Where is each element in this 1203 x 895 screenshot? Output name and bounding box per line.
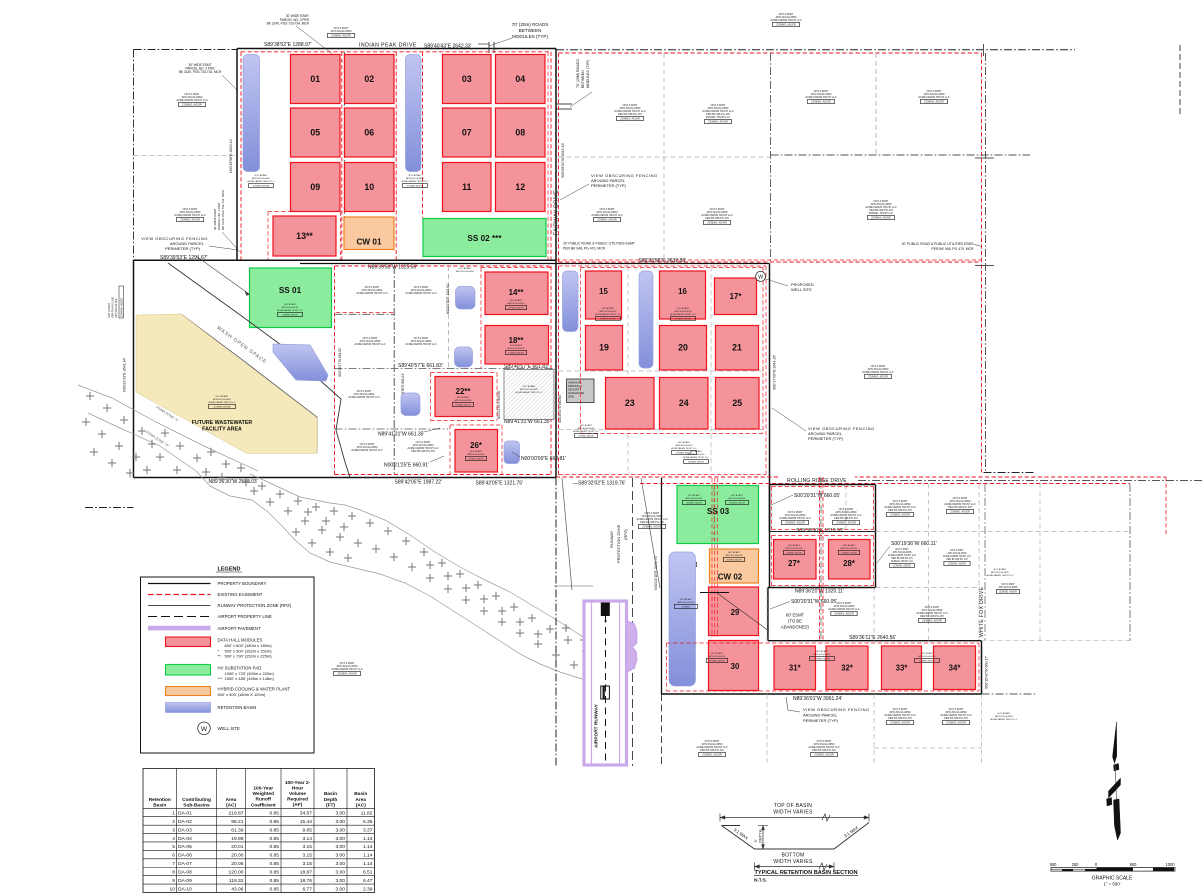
svg-text:98.21: 98.21	[231, 819, 244, 825]
svg-text:APN 301-04-005D: APN 301-04-005D	[282, 306, 299, 309]
svg-text:3.00: 3.00	[335, 844, 345, 850]
svg-text:NOT A PART: NOT A PART	[728, 551, 741, 554]
svg-text:4: 4	[172, 836, 175, 842]
svg-text:DA-10: DA-10	[178, 886, 192, 892]
svg-text:ZONING: AG/GR: ZONING: AG/GR	[786, 551, 802, 554]
svg-text:20.01: 20.01	[231, 844, 244, 850]
svg-text:TOP OF BASIN: TOP OF BASIN	[774, 803, 813, 809]
svg-text:3.00: 3.00	[335, 878, 345, 884]
svg-text:PROPERTY BOUNDARY: PROPERTY BOUNDARY	[218, 581, 267, 586]
svg-text:3.14: 3.14	[302, 836, 312, 842]
svg-text:BK 3140, PGS 733-734, MCR: BK 3140, PGS 733-734, MCR	[221, 189, 225, 230]
svg-text:NOT A PART: NOT A PART	[895, 548, 909, 551]
svg-text:ACME FARMS TRUST LLC: ACME FARMS TRUST LLC	[277, 309, 303, 312]
svg-text:ZONING: ZONING	[682, 606, 690, 608]
svg-text:18**: 18**	[509, 336, 525, 345]
svg-text:ZONING: AG/GR: ZONING: AG/GR	[948, 562, 966, 565]
svg-text:ZONING: AG/GR: ZONING: AG/GR	[726, 558, 742, 561]
svg-text:ROLLING RIDGE DRIVE: ROLLING RIDGE DRIVE	[787, 478, 847, 484]
svg-text:500: 500	[1050, 862, 1058, 867]
svg-text:0.85: 0.85	[269, 836, 279, 842]
svg-text:S00’05'02”W 2643.15': S00’05'02”W 2643.15'	[561, 143, 565, 178]
svg-text:ZONING: AG/SR: ZONING: AG/SR	[337, 671, 356, 675]
svg-text:WIDTH VARIES: WIDTH VARIES	[773, 859, 813, 865]
svg-text:ZONING: AG/GR: ZONING: AG/GR	[407, 184, 424, 187]
svg-text:ACME FARMS TRUST LLC: ACME FARMS TRUST LLC	[405, 342, 436, 346]
svg-text:ZONING: AG/GR: ZONING: AG/GR	[950, 509, 970, 513]
svg-text:PER BK 948 PG 470: PER BK 948 PG 470	[944, 716, 968, 720]
svg-text:BETWEEN: BETWEEN	[581, 70, 585, 88]
svg-text:3.15: 3.15	[302, 861, 312, 867]
svg-text:ZONING: AG/GR: ZONING: AG/GR	[686, 501, 702, 504]
svg-text:PER BK 948 PG 470: PER BK 948 PG 470	[618, 112, 642, 116]
svg-text:APN 301-04-005D: APN 301-04-005D	[213, 398, 231, 401]
svg-text:01: 01	[310, 74, 320, 84]
svg-text:(AC): (AC)	[226, 803, 237, 809]
svg-text:APN 301-04-005D: APN 301-04-005D	[709, 655, 726, 658]
svg-text:ZONING: AG/GR: ZONING: AG/GR	[871, 215, 891, 219]
svg-text:ACME FARMS TRUST LLC: ACME FARMS TRUST LLC	[356, 291, 387, 295]
svg-text:RUNWAY: RUNWAY	[609, 530, 614, 548]
svg-text:24: 24	[679, 398, 689, 408]
svg-text:20: 20	[678, 343, 688, 353]
svg-text:0.85: 0.85	[269, 819, 279, 825]
svg-text:HYBRID COOLING & WATER PLANT: HYBRID COOLING & WATER PLANT	[218, 687, 291, 692]
svg-text:ACME FARMS TRUST LLC: ACME FARMS TRUST LLC	[683, 456, 709, 459]
svg-text:ACME FARMS TRUST LLC: ACME FARMS TRUST LLC	[862, 370, 893, 374]
svg-text:ZONING: AG/GR: ZONING: AG/GR	[578, 434, 594, 437]
svg-text:Basin: Basin	[324, 791, 337, 797]
svg-text:ACME FARMS TRUST LLC: ACME FARMS TRUST LLC	[174, 213, 205, 217]
svg-text:02: 02	[364, 74, 374, 84]
svg-text:2.39: 2.39	[363, 886, 373, 892]
svg-text:N00’21'25”E 660.91': N00’21'25”E 660.91'	[384, 463, 429, 469]
svg-text:Volume: Volume	[289, 791, 306, 797]
svg-text:ZONING: AG/GR: ZONING: AG/GR	[814, 752, 834, 756]
svg-text:NOT A PART: NOT A PART	[816, 650, 829, 653]
svg-text:**: **	[218, 654, 222, 659]
svg-text:W: W	[201, 726, 208, 733]
svg-text:MODULES (TYP): MODULES (TYP)	[586, 60, 590, 88]
svg-text:11.82: 11.82	[361, 811, 373, 817]
svg-text:22**: 22**	[456, 387, 472, 396]
svg-text:ACME FARMS TRUST LLC: ACME FARMS TRUST LLC	[770, 18, 801, 22]
svg-text:BOTTOM: BOTTOM	[781, 853, 804, 859]
svg-text:NOT A PART: NOT A PART	[510, 299, 523, 302]
svg-text:500' x 730' (152m x 225m): 500' x 730' (152m x 225m)	[225, 654, 273, 659]
svg-text:APN 301-04-005D: APN 301-04-005D	[995, 715, 1013, 718]
svg-text:09: 09	[310, 182, 320, 192]
svg-text:ACME FARMS TRUST LLC: ACME FARMS TRUST LLC	[779, 516, 810, 520]
svg-text:61.39: 61.39	[231, 827, 244, 833]
svg-text:DEPTH: DEPTH	[758, 829, 763, 843]
svg-text:S00’19'27”W 661.01': S00’19'27”W 661.01'	[338, 347, 342, 377]
svg-text:ZONING: AG/GR: ZONING: AG/GR	[620, 116, 640, 120]
svg-text:NOT A PART: NOT A PART	[1001, 583, 1015, 586]
svg-text:—S89’32'02”E 1319.76': —S89’32'02”E 1319.76'	[573, 480, 626, 486]
svg-text:27*: 27*	[788, 559, 801, 568]
svg-text:N89’39'50”W 1325.56': N89’39'50”W 1325.56'	[368, 264, 417, 270]
svg-text:Area: Area	[355, 797, 366, 803]
svg-text:NOT A PART: NOT A PART	[843, 544, 856, 547]
svg-text:ZONING: AG/GR: ZONING: AG/GR	[893, 564, 911, 567]
svg-text:APN 301-04-005D: APN 301-04-005D	[841, 547, 858, 550]
svg-text:APN 301-04-005D: APN 301-04-005D	[578, 427, 595, 430]
svg-text:APN 301-04-005D: APN 301-04-005D	[508, 347, 525, 350]
svg-text:SS 03: SS 03	[707, 507, 730, 516]
svg-text:PER BK 948 PG 470: PER BK 948 PG 470	[948, 505, 972, 509]
svg-text:07: 07	[462, 127, 472, 137]
svg-text:2: 2	[172, 819, 175, 825]
svg-text:AROUND PARCEL: AROUND PARCEL	[803, 713, 838, 718]
svg-text:7: 7	[172, 861, 175, 867]
svg-text:3.00: 3.00	[335, 811, 345, 817]
svg-text:05: 05	[310, 127, 320, 137]
svg-text:APN 301-04-005D: APN 301-04-005D	[331, 29, 352, 33]
svg-text:6: 6	[172, 853, 175, 859]
svg-text:1.14: 1.14	[363, 844, 373, 850]
svg-text:ZONING: AG/GR: ZONING: AG/GR	[890, 720, 910, 724]
svg-text:ACME FARMS TRUST LLC: ACME FARMS TRUST LLC	[888, 554, 917, 557]
svg-text:ACME FARMS TRUST LLC: ACME FARMS TRUST LLC	[516, 391, 543, 394]
svg-text:ZONING: AG/GR: ZONING: AG/GR	[508, 306, 524, 309]
svg-text:NOT A PART: NOT A PART	[731, 494, 744, 497]
svg-text:FACILITY AREA: FACILITY AREA	[202, 427, 242, 433]
svg-text:100-Year: 100-Year	[253, 786, 273, 792]
svg-text:60' ESMT: 60' ESMT	[786, 613, 805, 618]
svg-text:ACME FARMS TRUST LLC: ACME FARMS TRUST LLC	[248, 180, 275, 183]
svg-text:DA-09: DA-09	[178, 878, 192, 884]
svg-text:S89’40'57”E 661.83': S89’40'57”E 661.83'	[504, 364, 549, 370]
svg-text:NOT A PART: NOT A PART	[950, 549, 964, 552]
svg-text:ZONING: AG/GR: ZONING: AG/GR	[597, 217, 617, 221]
svg-text:3: 3	[172, 827, 175, 833]
svg-text:APN 301-04-005D: APN 301-04-005D	[726, 554, 743, 557]
svg-text:PER BK 948 PG 470: PER BK 948 PG 470	[920, 614, 944, 618]
svg-text:APN 301-04-005D: APN 301-04-005D	[688, 453, 705, 456]
svg-text:S00’17'40”W 2644.25': S00’17'40”W 2644.25'	[773, 355, 777, 390]
svg-text:VIEW OBSCURING FENCING: VIEW OBSCURING FENCING	[803, 707, 870, 712]
svg-text:119.32: 119.32	[229, 878, 244, 884]
svg-text:19.98: 19.98	[231, 836, 244, 842]
svg-text:ZONING: AG/GR: ZONING: AG/GR	[946, 720, 966, 724]
svg-text:S89’42'05”E 1321.75': S89’42'05”E 1321.75'	[476, 480, 524, 486]
svg-text:20.00: 20.00	[231, 853, 244, 859]
svg-text:APN 301-04-005D: APN 301-04-005D	[678, 601, 695, 604]
svg-text:1: 1	[172, 811, 175, 817]
svg-text:600' x 600' (180m x 180m): 600' x 600' (180m x 180m)	[225, 643, 273, 648]
svg-text:500' x 500' (152m x 152m): 500' x 500' (152m x 152m)	[225, 648, 273, 653]
svg-text:PROTECTION ZONE: PROTECTION ZONE	[616, 524, 621, 563]
svg-text:03: 03	[462, 74, 472, 84]
svg-text:PER BK 948 PG 470: PER BK 948 PG 470	[888, 508, 912, 512]
svg-text:ACME FARMS TRUST LLC: ACME FARMS TRUST LLC	[209, 401, 236, 404]
svg-text:S89’33'58”E 2632.83': S89’33'58”E 2632.83'	[639, 258, 687, 264]
svg-text:WHITE FOX DRIVE: WHITE FOX DRIVE	[979, 586, 985, 637]
svg-text:ZONING: AG/GR: ZONING: AG/GR	[600, 317, 616, 320]
svg-text:N00’19'56”E 2643.14': N00’19'56”E 2643.14'	[229, 138, 233, 173]
svg-text:APN 301-04-005D: APN 301-04-005D	[468, 453, 485, 456]
svg-text:CW 01: CW 01	[356, 238, 381, 247]
svg-text:20.05: 20.05	[231, 861, 244, 867]
svg-text:Retention: Retention	[149, 797, 171, 803]
svg-text:APN 301-04-005D: APN 301-04-005D	[686, 497, 703, 500]
svg-text:20' PUBLIC ROAD & PUBLIC UTILI: 20' PUBLIC ROAD & PUBLIC UTILITIES ESMT	[563, 242, 635, 246]
svg-text:5: 5	[172, 844, 175, 850]
svg-text:Sub-Basins: Sub-Basins	[183, 803, 210, 809]
svg-text:ACME FARMS TRUST LLC: ACME FARMS TRUST LLC	[348, 395, 379, 399]
svg-text:NOT A PART: NOT A PART	[216, 395, 229, 398]
svg-text:DA-07: DA-07	[178, 861, 192, 867]
svg-text:APN 301-04-005D: APN 301-04-005D	[814, 653, 831, 656]
svg-text:WELL SITE: WELL SITE	[791, 287, 812, 292]
svg-text:NOT A PART: NOT A PART	[688, 494, 701, 497]
svg-text:PER BK 948 PG 470: PER BK 948 PG 470	[640, 520, 664, 524]
svg-text:SS 01: SS 01	[279, 286, 302, 295]
svg-text:3.15: 3.15	[302, 853, 312, 859]
svg-text:ACME FARMS TRUST LLC: ACME FARMS TRUST LLC	[943, 555, 972, 558]
svg-text:ACME FARMS TRUST LLC: ACME FARMS TRUST LLC	[591, 213, 622, 217]
svg-text:N89’41'31”W 661.35': N89’41'31”W 661.35'	[378, 432, 424, 438]
svg-text:RUNWAY PROTECTION ZONE (RPZ): RUNWAY PROTECTION ZONE (RPZ)	[218, 603, 292, 608]
svg-text:N89’36'30”W 2588.03': N89’36'30”W 2588.03'	[209, 479, 258, 485]
svg-text:NOT A PART: NOT A PART	[678, 441, 691, 444]
svg-text:33*: 33*	[896, 664, 909, 673]
svg-text:APN 301-04-005D: APN 301-04-005D	[252, 177, 270, 180]
svg-text:15.44: 15.44	[300, 819, 313, 825]
svg-text:14**: 14**	[509, 288, 525, 297]
svg-text:BK 3140, PGS 733-734, MCR: BK 3140, PGS 733-734, MCR	[179, 70, 222, 74]
svg-text:ZONING: AG/GR: ZONING: AG/GR	[282, 313, 298, 316]
svg-text:ZONING: AG/GR: ZONING: AG/GR	[182, 102, 202, 106]
svg-text:3.00: 3.00	[335, 836, 345, 842]
svg-text:16: 16	[678, 287, 687, 296]
svg-text:70' (20M) ROADS: 70' (20M) ROADS	[576, 59, 580, 88]
svg-text:17*: 17*	[730, 292, 743, 301]
svg-text:Coefficient: Coefficient	[251, 802, 276, 808]
svg-text:APN 301-04-005D: APN 301-04-005D	[676, 444, 693, 447]
svg-text:ACME FARMS TRUST LLC: ACME FARMS TRUST LLC	[405, 291, 436, 295]
svg-text:PER BK 948, PG 470, MCR: PER BK 948, PG 470, MCR	[931, 247, 974, 251]
svg-text:PER BK 948 PG 470: PER BK 948 PG 470	[891, 558, 913, 560]
svg-text:APN 301-04-005D: APN 301-04-005D	[948, 552, 967, 555]
svg-text:0.85: 0.85	[269, 869, 279, 875]
svg-text:ZONING: AG/GR: ZONING: AG/GR	[331, 33, 351, 37]
svg-text:0.85: 0.85	[269, 827, 279, 833]
svg-text:100-Year 2-: 100-Year 2-	[285, 780, 311, 786]
svg-text:NOT A PART: NOT A PART	[523, 385, 536, 388]
svg-text:18.76: 18.76	[300, 878, 313, 884]
svg-text:NOT A PART: NOT A PART	[409, 174, 422, 177]
svg-text:N00’23'54”E 660.80': N00’23'54”E 660.80'	[497, 390, 501, 419]
svg-text:ZONING: AG/GR: ZONING: AG/GR	[708, 119, 728, 123]
svg-text:19: 19	[599, 343, 609, 353]
svg-text:PERIMETER (TYP): PERIMETER (TYP)	[591, 183, 627, 188]
svg-text:N00’21'35”E 1321.81': N00’21'35”E 1321.81'	[446, 283, 450, 314]
svg-text:PERIMETER (TYP): PERIMETER (TYP)	[803, 718, 839, 723]
svg-text:PER BK 948 PG 470: PER BK 948 PG 470	[888, 716, 912, 720]
svg-text:10: 10	[170, 886, 176, 892]
svg-text:23: 23	[625, 398, 635, 408]
svg-text:INDIAN PEAK DRIVE: INDIAN PEAK DRIVE	[359, 43, 417, 49]
svg-text:HV SUBSTATION PAD: HV SUBSTATION PAD	[218, 666, 262, 671]
svg-text:Contributing: Contributing	[182, 797, 211, 803]
svg-text:NOT A PART: NOT A PART	[788, 544, 801, 547]
svg-text:3.00: 3.00	[335, 853, 345, 859]
svg-text:1000' x 725' (300m x 220m): 1000' x 725' (300m x 220m)	[225, 671, 275, 676]
svg-text:S89’39'53”E 1291.67': S89’39'53”E 1291.67'	[160, 255, 208, 261]
svg-text:ACME FARMS TRUST LLC: ACME FARMS TRUST LLC	[828, 607, 859, 611]
svg-text:ZONING: AG/GR: ZONING: AG/GR	[814, 657, 830, 660]
svg-text:1000: 1000	[1165, 862, 1175, 867]
svg-text:08: 08	[515, 127, 525, 137]
svg-text:PER BK 948 PG 470: PER BK 948 PG 470	[700, 748, 724, 752]
svg-text:ZONING: AG/GR: ZONING: AG/GR	[776, 22, 796, 26]
svg-text:APN 301-04-005D: APN 301-04-005D	[600, 310, 617, 313]
svg-text:41: 41	[604, 619, 608, 623]
svg-text:6.77: 6.77	[302, 886, 312, 892]
svg-text:DA-08: DA-08	[178, 869, 192, 875]
svg-text:NOT A PART: NOT A PART	[921, 652, 934, 655]
svg-text:LEGEND: LEGEND	[218, 567, 241, 573]
svg-text:0.85: 0.85	[269, 811, 279, 817]
svg-text:NOT A PART: NOT A PART	[107, 303, 111, 318]
svg-text:APN 301-04-005D: APN 301-04-005D	[999, 586, 1018, 589]
svg-text:RETENTION BASIN: RETENTION BASIN	[218, 705, 257, 710]
svg-text:ACME FARMS TRUST LLC: ACME FARMS TRUST LLC	[402, 180, 429, 183]
svg-text:NOT A PART: NOT A PART	[284, 303, 297, 306]
svg-text:PARCEL TRUST LLC: PARCEL TRUST LLC	[869, 211, 894, 215]
svg-text:S00’19'36”W 660.11': S00’19'36”W 660.11'	[891, 541, 937, 547]
svg-text:PER BK 948 PG 470: PER BK 948 PG 470	[705, 216, 729, 220]
svg-text:ZONING: AG/GR: ZONING: AG/GR	[999, 590, 1017, 593]
svg-text:NOT A PART: NOT A PART	[255, 174, 268, 177]
svg-text:DA-05: DA-05	[178, 844, 192, 850]
svg-text:219.87: 219.87	[229, 811, 244, 817]
svg-text:ACME FARMS TRUST LLC: ACME FARMS TRUST LLC	[176, 98, 207, 102]
svg-text:0.85: 0.85	[269, 878, 279, 884]
svg-text:S89’42'05”E 1987.22': S89’42'05”E 1987.22'	[395, 479, 443, 485]
svg-text:ZONING: AG/GR: ZONING: AG/GR	[729, 501, 745, 504]
svg-text:S00’20'31”W 660.05': S00’20'31”W 660.05'	[794, 493, 840, 499]
svg-text:(AF): (AF)	[293, 802, 303, 808]
svg-text:ACME FARMS TRUST LLC: ACME FARMS TRUST LLC	[671, 447, 697, 450]
svg-text:PER BK 948 PG 470: PER BK 948 PG 470	[834, 516, 858, 520]
svg-text:***: ***	[218, 676, 223, 681]
svg-text:15: 15	[599, 287, 608, 296]
svg-text:Runoff: Runoff	[256, 797, 272, 803]
svg-text:S00’20'31”W 660.05': S00’20'31”W 660.05'	[791, 599, 837, 605]
svg-text:34.57: 34.57	[300, 811, 313, 817]
svg-text:250: 250	[1072, 862, 1080, 867]
svg-text:1.14: 1.14	[363, 853, 373, 859]
svg-text:DA-01: DA-01	[178, 811, 192, 817]
svg-text:43.06: 43.06	[231, 886, 244, 892]
svg-text:600' x 400' (180m X 120m): 600' x 400' (180m X 120m)	[218, 692, 266, 697]
svg-text:CW 02: CW 02	[718, 573, 743, 582]
svg-text:9.65: 9.65	[302, 827, 312, 833]
svg-text:N89’36'01”W 3961.24': N89’36'01”W 3961.24'	[793, 696, 842, 702]
svg-text:(360): (360)	[568, 395, 574, 399]
svg-text:NOT A PART: NOT A PART	[580, 424, 593, 427]
svg-text:11: 11	[462, 182, 471, 192]
svg-text:06: 06	[364, 127, 374, 137]
svg-text:PERIMETER (TYP): PERIMETER (TYP)	[165, 246, 201, 251]
svg-text:ZONING: AG/GR: ZONING: AG/GR	[455, 403, 471, 406]
svg-text:Basin: Basin	[354, 791, 367, 797]
svg-text:APN 301-04-005D: APN 301-04-005D	[456, 270, 474, 273]
svg-text:32*: 32*	[841, 664, 854, 673]
svg-text:NOT A PART: NOT A PART	[510, 344, 523, 347]
svg-text:MODULES (TYP): MODULES (TYP)	[512, 34, 548, 39]
svg-text:ZONING: AG/GR: ZONING: AG/GR	[834, 611, 854, 615]
svg-text:SECURITY: SECURITY	[568, 388, 581, 392]
svg-text:3.00: 3.00	[335, 869, 345, 875]
svg-text:9: 9	[172, 878, 175, 884]
svg-text:3.00: 3.00	[335, 827, 345, 833]
svg-text:20' PUBLIC ROAD & PUBLIC UTILI: 20' PUBLIC ROAD & PUBLIC UTILITIES ESMT	[902, 242, 974, 246]
svg-text:GATEHOUSE: GATEHOUSE	[568, 391, 584, 395]
svg-text:ZONING: AG/GR: ZONING: AG/GR	[702, 752, 722, 756]
svg-text:ZONING: AG/GR: ZONING: AG/GR	[919, 659, 935, 662]
svg-text:NOT A PART: NOT A PART	[470, 450, 483, 453]
svg-text:APN 301-04-005D: APN 301-04-005D	[893, 551, 912, 554]
svg-text:ZONING: AG/GR: ZONING: AG/GR	[890, 512, 910, 516]
svg-text:0.85: 0.85	[269, 861, 279, 867]
svg-text:28*: 28*	[843, 559, 856, 568]
svg-text:SRP TRANS LINE: SRP TRANS LINE	[111, 296, 115, 318]
svg-text:3.00: 3.00	[335, 819, 345, 825]
svg-text:ACME FARMS TRUST LLC: ACME FARMS TRUST LLC	[573, 430, 599, 433]
svg-text:ZONING: AG/GR: ZONING: AG/GR	[868, 374, 888, 378]
svg-text:Area: Area	[226, 797, 237, 803]
svg-text:ZONING: AG/GR: ZONING: AG/GR	[468, 457, 484, 460]
svg-text:PARCEL TRUST LLC: PARCEL TRUST LLC	[706, 115, 731, 119]
svg-text:12: 12	[515, 182, 525, 192]
svg-text:ACME FARMS TRUST LLC: ACME FARMS TRUST LLC	[991, 718, 1018, 721]
svg-text:13**: 13**	[296, 231, 313, 241]
svg-text:PER BK 948 PG 470: PER BK 948 PG 470	[812, 748, 836, 752]
svg-text:ZONING: AG/GR: ZONING: AG/GR	[688, 460, 704, 463]
svg-text:APN 301-04-005D: APN 301-04-005D	[919, 655, 936, 658]
svg-text:ZONING: AG/GR: ZONING: AG/GR	[642, 524, 662, 528]
svg-text:10: 10	[364, 182, 374, 192]
svg-text:PER BK 948 PG 470: PER BK 948 PG 470	[411, 449, 435, 453]
svg-text:NOT A PART: NOT A PART	[994, 568, 1007, 571]
svg-text:APN 301-04-005D: APN 301-04-005D	[520, 388, 538, 391]
svg-text:ZONING: AG/GR: ZONING: AG/GR	[214, 405, 231, 408]
svg-text:W: W	[758, 275, 763, 281]
svg-text:WELL SITE: WELL SITE	[218, 726, 240, 731]
svg-text:ABANDONED): ABANDONED)	[781, 625, 810, 630]
svg-text:3.37: 3.37	[363, 827, 373, 833]
svg-text:5.35: 5.35	[363, 819, 373, 825]
svg-text:APN 301-04-005D: APN 301-04-005D	[455, 399, 472, 402]
svg-text:BK 3140, PGS 733-734, MCR: BK 3140, PGS 733-734, MCR	[267, 22, 310, 26]
svg-text:PARCEL TRUST LLC: PARCEL TRUST LLC	[891, 560, 913, 563]
svg-text:1.14: 1.14	[363, 861, 373, 867]
svg-text:S89’38'02”E 1288.97': S89’38'02”E 1288.97'	[264, 42, 312, 48]
svg-text:AIRPORT RUNWAY: AIRPORT RUNWAY	[594, 703, 600, 748]
svg-text:ACME FARMS TRUST LLC: ACME FARMS TRUST LLC	[987, 574, 1014, 577]
svg-text:FUTURE WASTEWATER: FUTURE WASTEWATER	[192, 420, 253, 426]
svg-text:APN 301-04-005D: APN 301-04-005D	[406, 177, 424, 180]
svg-text:AIRPORT PROPERTY LINE: AIRPORT PROPERTY LINE	[218, 614, 272, 619]
svg-text:DA-02: DA-02	[178, 819, 192, 825]
svg-text:(RPZ): (RPZ)	[623, 529, 628, 540]
svg-text:PER BK 948, PG 470, MCR: PER BK 948, PG 470, MCR	[563, 247, 606, 251]
svg-text:TYPICAL RETENTION BASIN SECTIO: TYPICAL RETENTION BASIN SECTION	[754, 870, 857, 876]
